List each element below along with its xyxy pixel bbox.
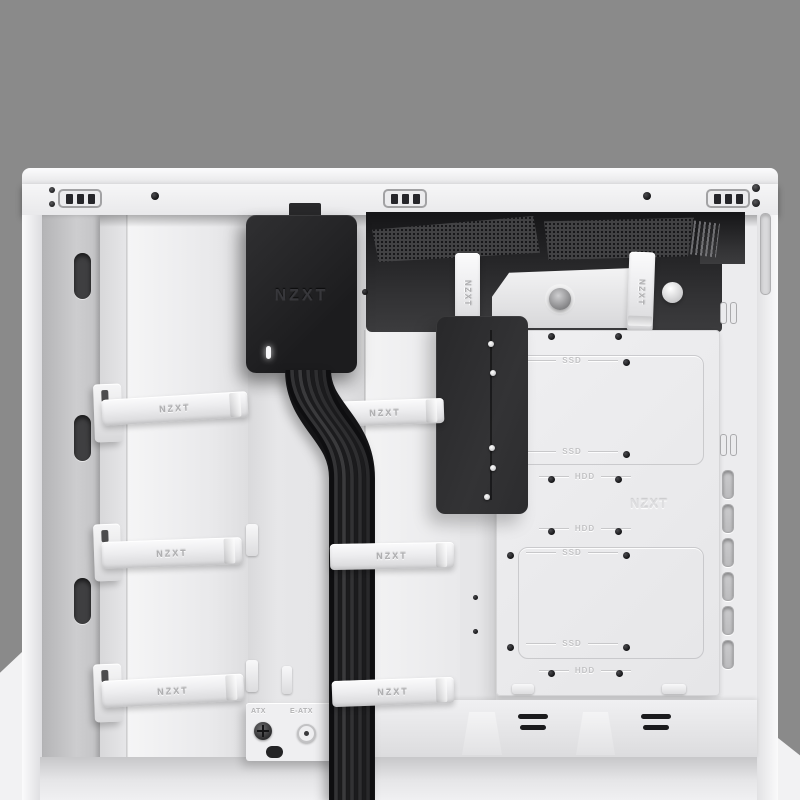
top-vent-slots xyxy=(706,189,750,208)
atx-label: ATX xyxy=(251,708,266,715)
strap-label: NZXT xyxy=(159,403,191,415)
drive-label-hdd: HDD xyxy=(575,666,595,675)
velcro-strap: NZXT xyxy=(332,677,455,707)
strap-label: NZXT xyxy=(377,686,409,697)
strap-label: NZXT xyxy=(156,548,188,559)
screw-hole xyxy=(615,333,622,340)
screw-hole xyxy=(507,644,514,651)
bracket-screw xyxy=(490,465,496,471)
drive-label-row: HDD xyxy=(525,472,645,481)
case-right-wall xyxy=(757,215,778,800)
hub-logo: NZXT xyxy=(246,287,357,305)
rivet xyxy=(49,201,55,207)
strap-label: NZXT xyxy=(463,280,472,307)
cable-tie-hook xyxy=(730,302,737,324)
side-vent-slot xyxy=(722,606,734,635)
side-vent-slot xyxy=(722,538,734,567)
ssd-bracket xyxy=(436,316,528,514)
rivet xyxy=(752,184,760,192)
drive-label-ssd: SSD xyxy=(562,639,581,648)
tray-brand-logo: NZXT xyxy=(630,496,668,511)
screw-hole xyxy=(615,528,622,535)
strap-label: NZXT xyxy=(376,551,408,562)
rubber-cable-clip xyxy=(641,712,673,738)
fan-cable-pins xyxy=(690,221,720,258)
plate-tab xyxy=(512,684,534,694)
screw-hole xyxy=(623,451,630,458)
side-vent-slot xyxy=(722,640,734,669)
rubber-plug xyxy=(662,282,683,303)
cable-bundle xyxy=(270,366,390,800)
edge-vent-slot xyxy=(760,213,771,295)
cable-pass-slot xyxy=(74,253,91,299)
cable-tie-hook xyxy=(720,302,727,324)
velcro-strap-vertical: NZXT xyxy=(627,252,656,333)
drive-label-row: SSD xyxy=(512,548,632,557)
cable-channel-left xyxy=(128,215,248,800)
screw-hole xyxy=(623,644,630,651)
screw-hole xyxy=(623,552,630,559)
fan-rgb-controller-hub: NZXT xyxy=(246,215,357,373)
drive-label-row: SSD xyxy=(512,447,632,456)
bracket-screw xyxy=(490,370,496,376)
case-floor xyxy=(40,757,757,800)
bottom-rail xyxy=(366,700,757,759)
rubber-cable-clip xyxy=(518,712,550,738)
screw-hole xyxy=(507,552,514,559)
top-vent-slots xyxy=(58,189,102,208)
side-vent-slot xyxy=(722,504,734,533)
drive-label-hdd: HDD xyxy=(575,524,595,533)
screw-hole xyxy=(623,359,630,366)
bracket-screw xyxy=(488,341,494,347)
side-vent-slot xyxy=(722,572,734,601)
screw xyxy=(643,192,651,200)
strap-label: NZXT xyxy=(636,278,646,305)
cable-tie-tab xyxy=(246,660,258,692)
cable-tie-hook xyxy=(720,434,727,456)
cable-pass-slot xyxy=(74,578,91,624)
drive-label-row: HDD xyxy=(525,524,645,533)
plate-tab xyxy=(662,684,686,694)
velcro-strap: NZXT xyxy=(102,537,243,569)
screw-hole xyxy=(616,670,623,677)
screw-hole xyxy=(362,289,368,295)
rivet xyxy=(752,199,760,207)
drive-label-row: SSD xyxy=(512,356,632,365)
case-top-lip xyxy=(22,168,778,185)
screw-hole xyxy=(615,476,622,483)
side-panel-edge xyxy=(0,652,22,800)
drive-label-hdd: HDD xyxy=(575,472,595,481)
cable-tie-hook xyxy=(730,434,737,456)
drive-label-ssd: SSD xyxy=(562,356,581,365)
side-panel-edge xyxy=(778,738,800,800)
drive-label-row: SSD xyxy=(512,639,632,648)
strap-label: NZXT xyxy=(157,685,189,697)
screw-hole xyxy=(473,629,478,634)
cable-pass-slot xyxy=(74,415,91,461)
bracket-screw xyxy=(484,494,490,500)
screw xyxy=(151,192,159,200)
panel-seam xyxy=(126,215,129,800)
screw-hole xyxy=(473,595,478,600)
drive-label-ssd: SSD xyxy=(562,548,581,557)
screw-hole xyxy=(548,528,555,535)
drive-label-ssd: SSD xyxy=(562,447,581,456)
side-vent-slot xyxy=(722,470,734,499)
product-photo-scene: NZXT NZXT SSD SSD HDD HDD SSD SSD HDD NZ… xyxy=(0,0,800,800)
bracket-screw xyxy=(489,445,495,451)
velcro-strap: NZXT xyxy=(330,542,454,570)
top-vent-slots xyxy=(383,189,427,208)
rivet xyxy=(49,187,55,193)
led-indicator xyxy=(266,346,271,359)
case-left-wall xyxy=(22,215,42,800)
top-mesh-vent xyxy=(544,214,694,260)
drive-label-row: HDD xyxy=(525,666,645,675)
screw-hole xyxy=(548,476,555,483)
thumbscrew xyxy=(549,288,571,310)
cable-tie-tab xyxy=(246,524,258,556)
screw-hole xyxy=(548,670,555,677)
screw-hole xyxy=(548,333,555,340)
left-recessed-panel xyxy=(42,215,100,800)
